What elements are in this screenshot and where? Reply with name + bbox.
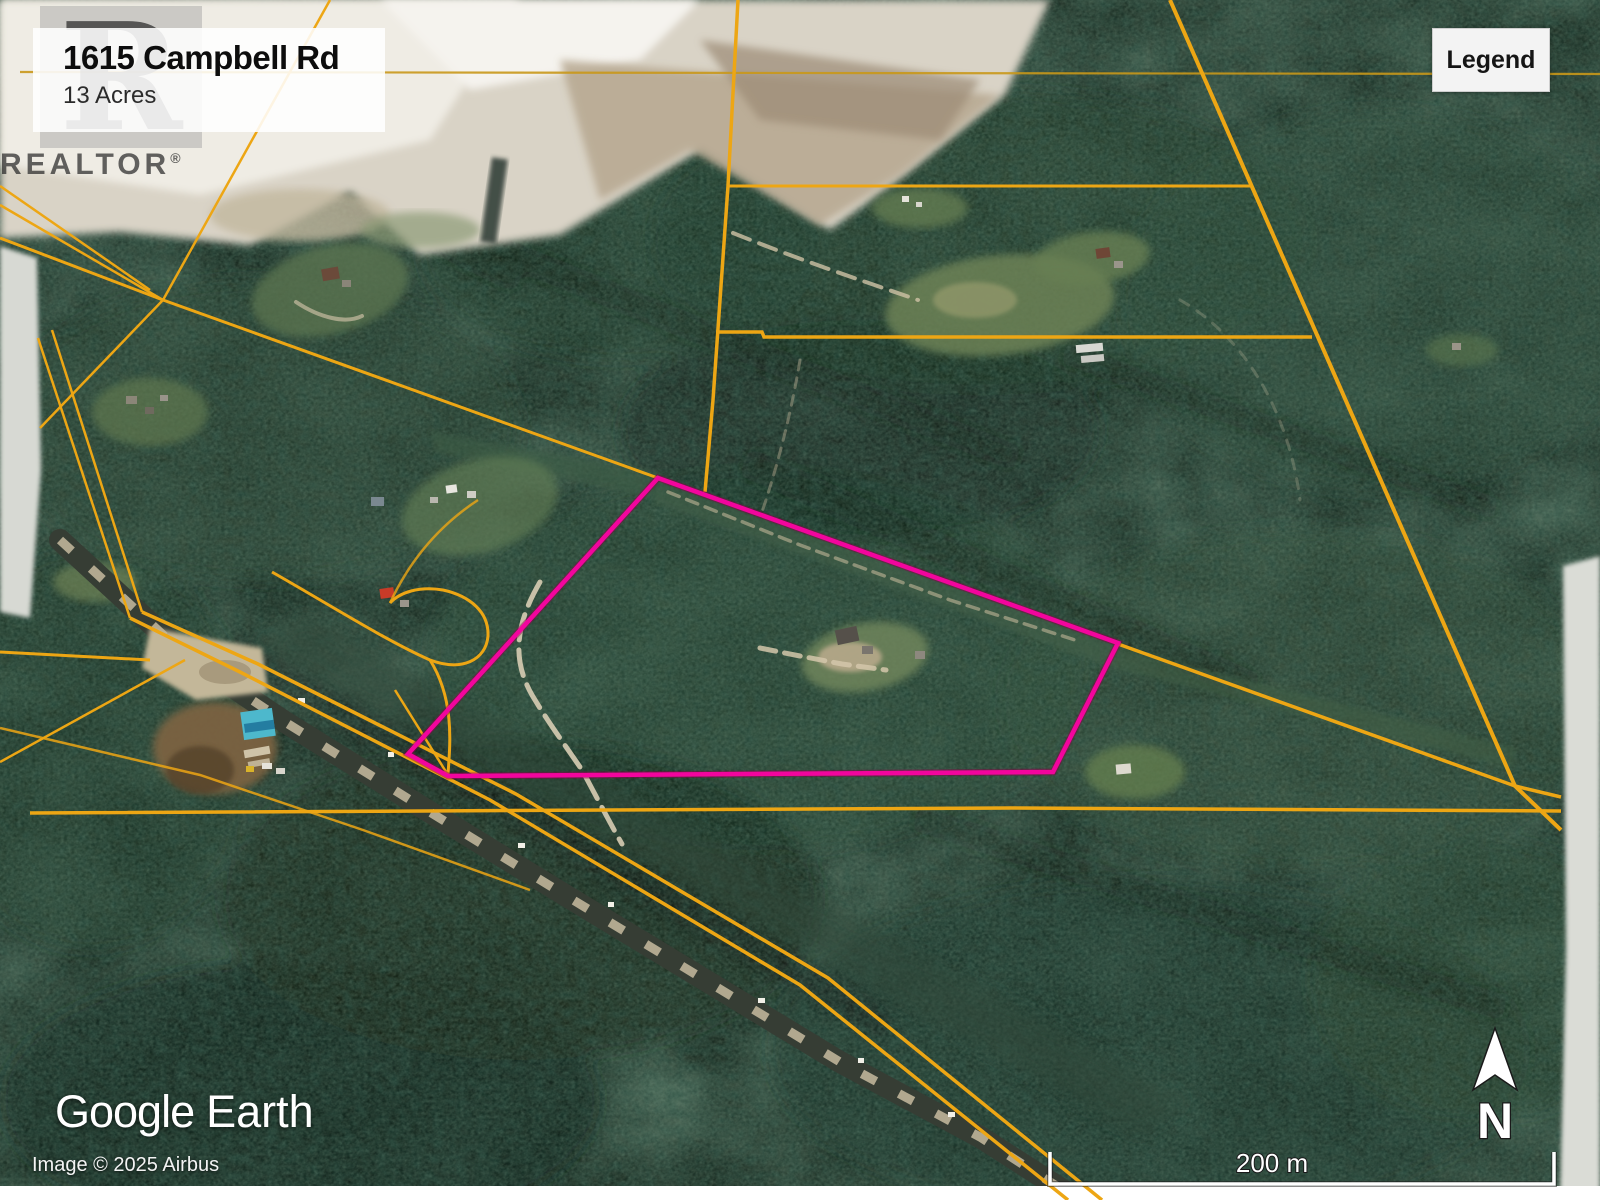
- scale-bar: 200 m: [1040, 1138, 1564, 1196]
- property-acreage: 13 Acres: [63, 82, 375, 110]
- satellite-map[interactable]: [0, 0, 1600, 1200]
- earth-wordmark: Earth: [206, 1086, 314, 1137]
- google-wordmark: Google: [55, 1086, 194, 1137]
- imagery-credit: Image © 2025 Airbus: [32, 1154, 219, 1177]
- property-info-card: 1615 Campbell Rd 13 Acres: [33, 28, 385, 132]
- property-title: 1615 Campbell Rd: [63, 38, 375, 78]
- realtor-watermark-text: REALTOR®: [0, 148, 181, 182]
- legend-button[interactable]: Legend: [1432, 28, 1550, 92]
- google-earth-logo: GoogleEarth: [55, 1086, 314, 1138]
- north-arrow: N: [1460, 1022, 1532, 1148]
- scale-label: 200 m: [1236, 1148, 1308, 1178]
- registered-mark: ®: [170, 150, 180, 166]
- map-screenshot: R REALTOR® 1615 Campbell Rd 13 Acres Leg…: [0, 0, 1600, 1200]
